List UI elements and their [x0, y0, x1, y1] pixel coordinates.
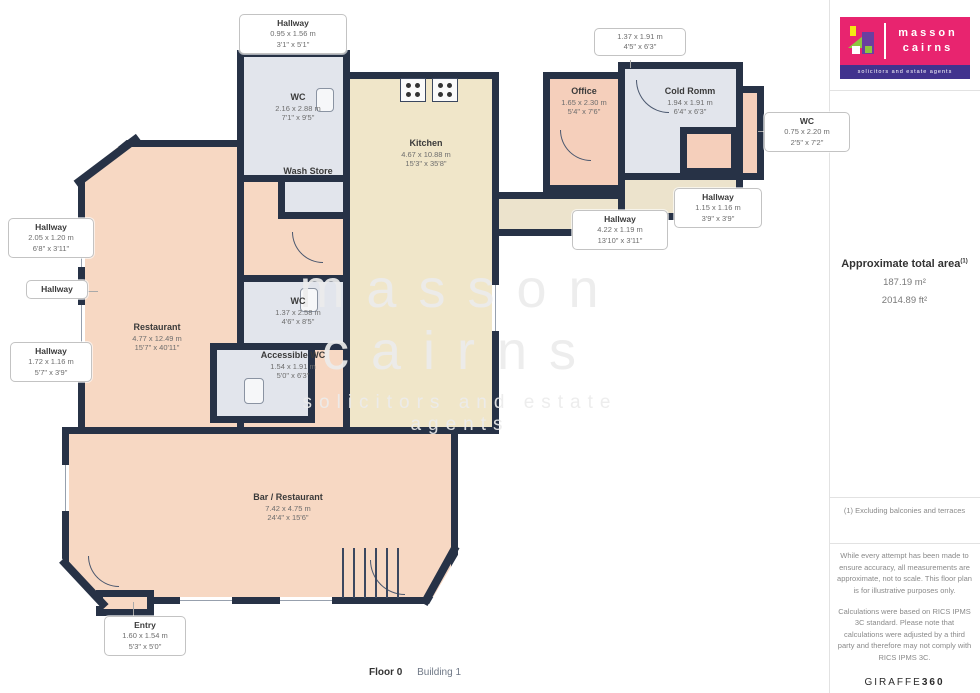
- giraffe360-brand: GIRAFFE360: [835, 675, 974, 691]
- disclaimer-1: While every attempt has been made to ens…: [835, 550, 974, 597]
- total-area-ft2: 2014.89 ft²: [829, 295, 980, 306]
- callout-entry: Entry 1.60 x 1.54 m 5'3" x 5'0": [104, 616, 186, 656]
- house-logo-icon: [846, 26, 878, 56]
- label-office: Office 1.65 x 2.30 m 5'4" x 7'6": [545, 86, 623, 117]
- logo-word-2: cairns: [886, 41, 970, 56]
- floor-label: Floor 0: [369, 667, 402, 678]
- disclaimer-2: Calculations were based on RICS IPMS 3C …: [835, 606, 974, 664]
- total-area-m2: 187.19 m²: [829, 277, 980, 288]
- room-wash-store: [278, 175, 350, 219]
- callout-unnamed-room: 1.37 x 1.91 m 4'5" x 6'3": [594, 28, 686, 56]
- sidebar-divider: [829, 0, 830, 693]
- floorplan-page: masson cairns solicitors and estate agen…: [0, 0, 980, 693]
- callout-hallway-top: Hallway 0.95 x 1.56 m 3'1" x 5'1": [239, 14, 347, 54]
- sidebar-divider: [829, 90, 980, 91]
- footnote-text: (1) Excluding balconies and terraces: [829, 506, 980, 515]
- label-accessible-wc: Accessible WC 1.54 x 1.91 m 5'0" x 6'3": [235, 350, 351, 381]
- callout-hallway-left-1: Hallway 2.05 x 1.20 m 6'8" x 3'11": [8, 218, 94, 258]
- window: [180, 597, 232, 604]
- label-kitchen: Kitchen 4.67 x 10.88 m 15'3" x 35'8": [351, 138, 501, 169]
- building-label: Building 1: [417, 667, 461, 678]
- label-wc-mid: WC 1.37 x 2.58 m 4'6" x 8'5": [250, 296, 346, 327]
- label-cold-room: Cold Romm 1.94 x 1.91 m 6'4" x 6'3": [638, 86, 742, 117]
- cooktop-icon: [432, 78, 458, 102]
- cooktop-icon: [400, 78, 426, 102]
- plan-footer: Floor 0 Building 1: [300, 667, 530, 678]
- window: [280, 597, 332, 604]
- callout-hallway-plain: Hallway: [26, 280, 88, 299]
- window: [62, 465, 69, 511]
- room-small-store: [680, 127, 738, 175]
- toilet-icon: [244, 378, 264, 404]
- callout-pointer: [133, 602, 134, 616]
- label-bar-restaurant: Bar / Restaurant 7.42 x 4.75 m 24'4" x 1…: [218, 492, 358, 523]
- label-restaurant: Restaurant 4.77 x 12.49 m 15'7" x 40'11": [97, 322, 217, 353]
- logo-tagline: solicitors and estate agents: [840, 65, 970, 79]
- logo-word-1: masson: [886, 26, 970, 41]
- footnote-marker: (1): [960, 258, 967, 264]
- sidebar-divider: [829, 497, 980, 498]
- callout-hallway-right: Hallway 1.15 x 1.16 m 3'9" x 3'9": [674, 188, 762, 228]
- room-kitchen: [343, 72, 499, 434]
- total-area-title: Approximate total area(1): [829, 258, 980, 270]
- callout-hallway-left-2: Hallway 1.72 x 1.16 m 5'7" x 3'9": [10, 342, 92, 382]
- window: [78, 305, 85, 347]
- callout-hallway-mid: Hallway 4.22 x 1.19 m 13'10" x 3'11": [572, 210, 668, 250]
- window: [492, 285, 499, 331]
- label-wash-store: Wash Store: [268, 166, 348, 178]
- stairs: [342, 548, 400, 598]
- label-wc-top: WC 2.16 x 2.88 m 7'1" x 9'5": [250, 92, 346, 123]
- total-area-block: Approximate total area(1) 187.19 m² 2014…: [829, 258, 980, 306]
- callout-wc-right: WC 0.75 x 2.20 m 2'5" x 7'2": [764, 112, 850, 152]
- callout-pointer: [630, 60, 631, 68]
- info-sidebar: masson cairns solicitors and estate agen…: [829, 0, 980, 693]
- masson-cairns-logo: masson cairns solicitors and estate agen…: [840, 17, 970, 79]
- legal-block: While every attempt has been made to ens…: [835, 550, 974, 690]
- sidebar-divider: [829, 543, 980, 544]
